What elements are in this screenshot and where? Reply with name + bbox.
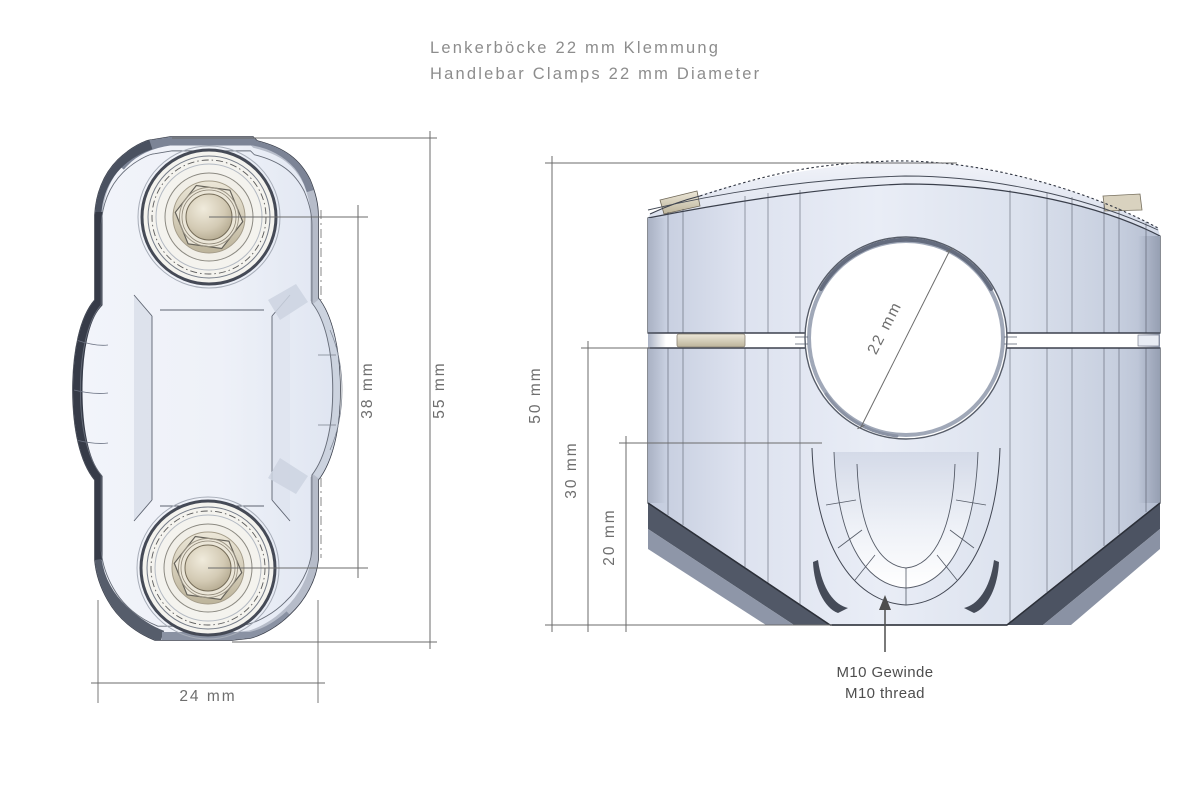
thread-note-german: M10 Gewinde (837, 664, 934, 681)
dim-label-20mm: 20 mm (601, 508, 618, 565)
dim-base-to-bore-20mm: 20 mm (601, 436, 626, 632)
thread-note-english: M10 thread (845, 685, 925, 702)
dim-label-30mm: 30 mm (563, 441, 580, 498)
dim-label-55mm: 55 mm (431, 361, 448, 418)
front-view: 22 mm 50 mm 30 mm 20 mm M10 Ge (527, 156, 1160, 702)
handlebar-clamp-drawing: Lenkerböcke 22 mm Klemmung Handlebar Cla… (0, 0, 1200, 800)
dim-bolt-spacing-38mm: 38 mm (358, 205, 376, 578)
dim-label-50mm: 50 mm (527, 366, 544, 423)
right-edge-shade (1138, 236, 1160, 503)
title-line-english: Handlebar Clamps 22 mm Diameter (430, 65, 761, 83)
dim-label-38mm: 38 mm (359, 361, 376, 418)
title-line-german: Lenkerböcke 22 mm Klemmung (430, 39, 720, 57)
left-edge-shade (648, 218, 666, 503)
dim-label-24mm: 24 mm (179, 688, 236, 705)
split-washer (677, 334, 745, 347)
dim-overall-length-55mm: 55 mm (430, 131, 448, 649)
drawing-title: Lenkerböcke 22 mm Klemmung Handlebar Cla… (430, 39, 761, 83)
dim-lower-clamp-height-30mm: 30 mm (563, 341, 588, 632)
technical-drawing-canvas: Lenkerböcke 22 mm Klemmung Handlebar Cla… (0, 0, 1200, 800)
dim-overall-width-24mm: 24 mm (91, 683, 325, 705)
dim-overall-height-50mm: 50 mm (527, 156, 552, 632)
right-crown-bolt (1103, 194, 1142, 211)
top-view: 38 mm 55 mm 24 mm (73, 131, 448, 705)
